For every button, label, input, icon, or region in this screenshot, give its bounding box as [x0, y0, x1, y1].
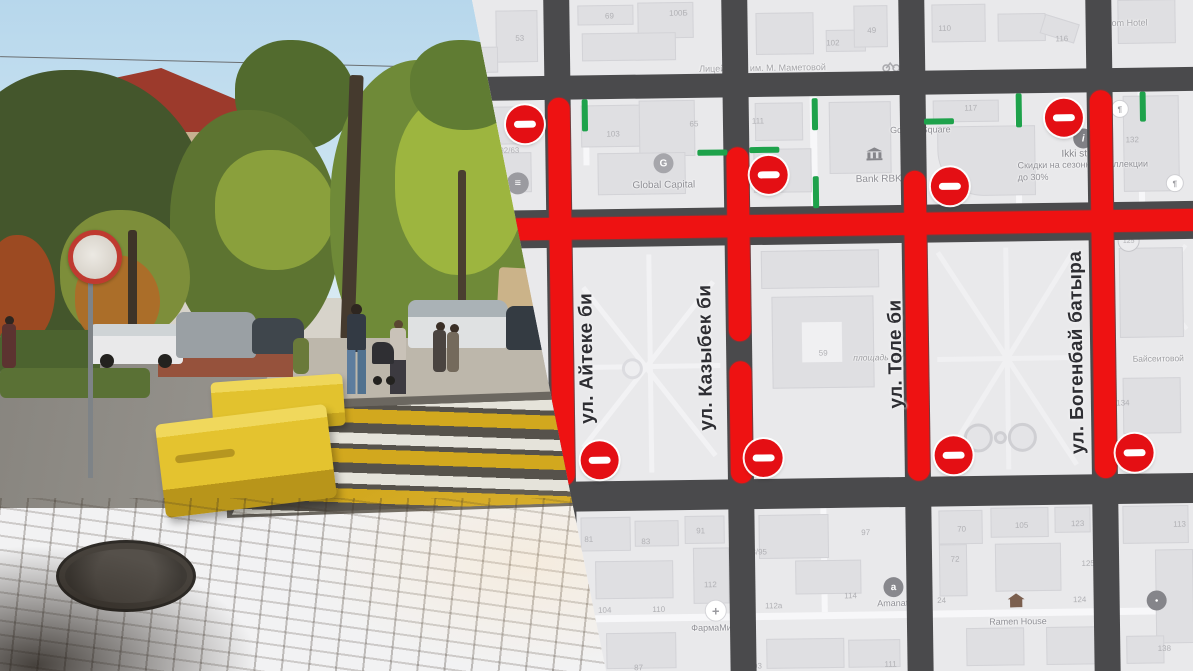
building-number: 112а — [765, 601, 782, 610]
building — [758, 514, 829, 559]
closed-road-segment — [726, 147, 751, 341]
open-crossing-mark — [697, 149, 727, 155]
building — [761, 249, 880, 289]
building — [966, 627, 1025, 666]
building-number: 97 — [861, 528, 870, 537]
open-crossing-mark — [1016, 93, 1022, 127]
global-capital-label: Global Capital — [632, 179, 695, 191]
building — [595, 560, 674, 599]
stroller-wheel — [386, 376, 395, 385]
building-number: 65 — [689, 119, 698, 128]
street-label-bogenbai-batyra: ул. Богенбай батыра — [1065, 242, 1090, 462]
sign-pole — [88, 268, 93, 478]
building-number: 110 — [652, 605, 665, 614]
open-crossing-mark — [813, 176, 819, 208]
bank-rbk-label: Bank RBK — [856, 173, 902, 185]
bank-icon — [866, 147, 882, 160]
stroller — [372, 342, 394, 364]
tree-canopy — [215, 150, 335, 270]
building-number: 105 — [1015, 521, 1028, 530]
hotel-label: om Hotel — [1112, 18, 1148, 29]
global-capital-icon: G — [653, 153, 673, 173]
pedestrian-legs — [347, 350, 366, 394]
pavement-shadow — [0, 545, 260, 671]
building-number: 112 — [704, 580, 717, 589]
restaurant-icon: • — [1147, 590, 1167, 610]
open-crossing-mark — [749, 147, 779, 153]
building-number: 83 — [641, 537, 650, 546]
building-number: 100Б — [669, 8, 688, 17]
news-graphic: Лицей №28 им. М. Маметовой Global Capita… — [0, 0, 1193, 671]
building-number: 81 — [584, 535, 593, 544]
building-number: 116 — [1055, 34, 1068, 43]
building — [766, 638, 844, 669]
pedestrian-body — [2, 324, 16, 368]
building — [582, 32, 676, 61]
pedestrian-body — [433, 330, 446, 372]
building-number: 111 — [752, 116, 764, 125]
building-number: 113 — [1173, 520, 1186, 529]
car-wheel — [158, 354, 172, 368]
pedestrian-body — [447, 332, 459, 372]
building — [829, 101, 892, 174]
building-number: 49 — [867, 26, 876, 35]
building-number: 69 — [605, 11, 614, 20]
hedge — [0, 368, 150, 398]
open-crossing-mark — [1140, 92, 1146, 122]
building — [755, 12, 814, 55]
building — [995, 543, 1062, 592]
ramen-house-label: Ramen House — [989, 616, 1047, 627]
street-label-kazybek-bi: ул. Казыбек би — [694, 248, 719, 468]
building-number: 117 — [964, 103, 977, 112]
building-number: 124 — [1073, 595, 1086, 604]
building-number: 104 — [598, 606, 611, 615]
baiseitova-street-label: Байсеитовой — [1133, 353, 1184, 364]
building-number: 110 — [938, 24, 951, 33]
building — [1119, 247, 1184, 338]
stroller-wheel — [373, 376, 382, 385]
building — [1123, 377, 1182, 434]
building-number: 59 — [819, 349, 828, 358]
building — [997, 13, 1045, 42]
building-number: 53 — [515, 34, 524, 43]
car-wheel — [100, 354, 114, 368]
building-number: 111 — [884, 660, 896, 669]
building — [581, 105, 648, 148]
building-number: 123 — [1071, 519, 1084, 528]
car-van-gray — [176, 312, 256, 358]
building — [639, 100, 696, 157]
building-number: 87 — [634, 663, 643, 671]
building-number: 114 — [844, 591, 857, 600]
street-label-tole-bi: ул. Толе би — [884, 244, 909, 464]
building-number: 24 — [937, 596, 946, 605]
building-number: 102 — [826, 38, 839, 47]
building-number: 103 — [606, 129, 619, 138]
ikki-label: Ikki st — [1061, 148, 1087, 159]
cafe-icon: ¶ — [1166, 174, 1184, 192]
building — [693, 547, 730, 603]
no-entry-road-sign — [68, 230, 122, 284]
street-label-aiteke-bi: ул. Айтеке би — [575, 248, 600, 468]
building-number: 134 — [1116, 398, 1129, 407]
open-crossing-mark — [812, 98, 818, 130]
amanat-label: Amanat — [877, 598, 908, 608]
building-number: 70 — [957, 525, 966, 534]
pedestrian-torso — [347, 314, 366, 352]
building — [795, 560, 861, 595]
building-number: 72 — [951, 555, 960, 564]
trash-bag — [293, 338, 309, 374]
building-number: 91 — [696, 526, 705, 535]
building-number: 138 — [1158, 644, 1171, 653]
building — [939, 544, 968, 596]
building-number: 132 — [1125, 135, 1138, 144]
open-crossing-mark — [924, 118, 954, 124]
open-crossing-mark — [582, 99, 588, 131]
